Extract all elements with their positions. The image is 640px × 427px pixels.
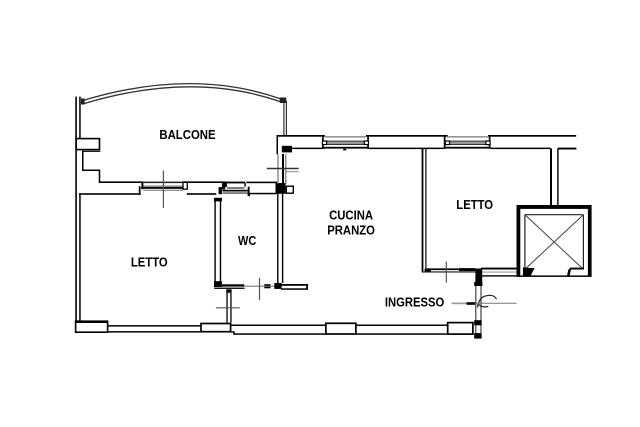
svg-text:INGRESSO: INGRESSO [385, 294, 444, 309]
svg-text:WC: WC [238, 233, 257, 248]
svg-text:LETTO: LETTO [131, 254, 168, 269]
svg-text:PRANZO: PRANZO [327, 222, 375, 237]
svg-text:LETTO: LETTO [456, 197, 493, 212]
svg-text:CUCINA: CUCINA [329, 207, 374, 222]
svg-text:BALCONE: BALCONE [159, 127, 215, 142]
